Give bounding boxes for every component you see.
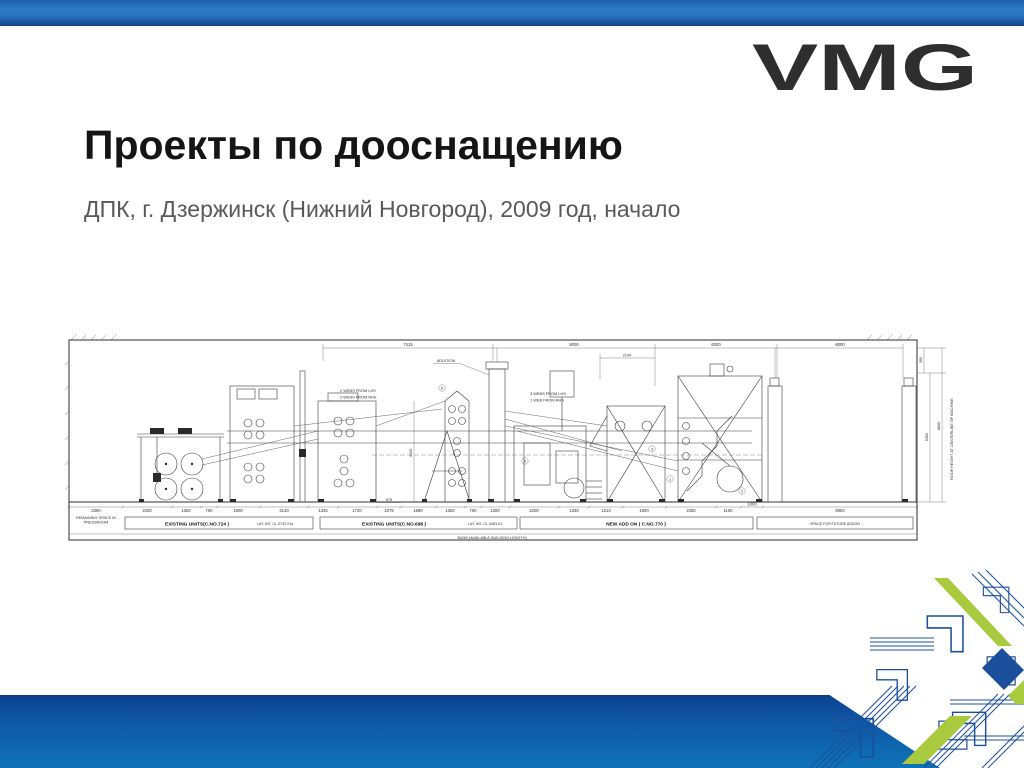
vmg-logo: VMG — [750, 32, 980, 104]
machine-layout-svg: 7415 8000 6000 6000 2194 ADDITION 2 WEBS… — [62, 331, 962, 547]
dim-label: 700 — [206, 508, 214, 513]
dim-label: 2200 — [142, 508, 152, 513]
pressroom-label: PRESSROOM — [84, 521, 109, 525]
dim-label: 1300 — [490, 508, 500, 513]
dim-label: 7415 — [403, 342, 413, 347]
section-sublabel: SPACE FOR FUTURE ADDON — [810, 522, 860, 526]
dim-label: 1345 — [569, 508, 579, 513]
dim-label: 300 — [919, 357, 923, 363]
slide-subtitle: ДПК, г. Дзержинск (Нижний Новгород), 200… — [84, 196, 964, 223]
section-sublabel: LAY. NO. CL-0742.01a — [257, 522, 293, 526]
ref-number: 2 — [741, 489, 743, 493]
dim-label: 8000 — [569, 342, 579, 347]
blue-solid-arrow — [982, 648, 1024, 690]
dim-label: 1000 — [747, 502, 757, 507]
section-sublabel: LAY. NO. CL-0483.01 — [468, 522, 502, 526]
dim-label: 5350 — [925, 433, 929, 441]
dim-label: 1075 — [384, 508, 394, 513]
addition-label: ADDITION — [437, 358, 456, 363]
dim-label: 1580 — [413, 508, 423, 513]
reference-bubbles: 6 5 3 1 2 — [439, 385, 745, 494]
webs-label: 3 WEBS FROM LHS — [530, 391, 566, 396]
dim-label: 6000 — [711, 342, 721, 347]
top-accent-bar — [0, 0, 1024, 26]
ref-number: 1 — [669, 477, 671, 481]
dim-label: 2194 — [623, 354, 631, 358]
dim-label: 1100 — [723, 508, 733, 513]
dim-label: 1300 — [181, 508, 191, 513]
webs-label: 1 WEB FROM RHS — [530, 398, 564, 403]
dim-label: 675 — [386, 498, 392, 502]
webs-label: 2 WEBS FROM RHS — [340, 395, 377, 400]
dim-label: 1900 — [233, 508, 243, 513]
dim-label: 2200 — [529, 508, 539, 513]
interior-dimensions: 4405 675 — [377, 401, 414, 503]
dim-label: 8800 — [937, 422, 941, 430]
ref-number: 5 — [524, 459, 526, 463]
dim-label: 2250 — [686, 508, 696, 513]
corner-decoration — [774, 568, 1024, 768]
roof-height-dimensions: 300 5350 8800 ROOF HEIGHT AT CENTERLINE … — [917, 348, 954, 502]
webs-label: 2 WEBS FROM LHS — [340, 388, 376, 393]
slide-title: Проекты по дооснащению — [84, 122, 964, 169]
vmg-logo-text: VMG — [752, 32, 978, 104]
pressroom-label: REMAINING SPACE IN — [76, 516, 116, 520]
ref-number: 3 — [651, 447, 653, 451]
addition-annotation: ADDITION — [433, 358, 489, 375]
technical-drawing: 7415 8000 6000 6000 2194 ADDITION 2 WEBS… — [62, 331, 962, 547]
dim-label: 700 — [470, 508, 478, 513]
section-label-boxes: EXISTING UNITS(C.NO.724 ) LAY. NO. CL-07… — [125, 517, 913, 529]
section-label: EXISTING UNITS(C.NO.724 ) — [165, 522, 229, 528]
ref-number: 6 — [441, 386, 443, 390]
total-length-label: 36260 (AVAILABLE BUILDING LENGTH) — [457, 536, 527, 540]
dim-label: 6900 — [835, 508, 845, 513]
dim-label: 2390 — [91, 508, 101, 513]
dim-label: 1300 — [445, 508, 455, 513]
dim-label: 1345 — [318, 508, 328, 513]
dim-label: 1900 — [639, 508, 649, 513]
machinery-linework — [137, 364, 908, 502]
section-label: NEW ADD ON ( C.NO.770 ) — [606, 522, 666, 528]
dim-label: 6000 — [835, 342, 845, 347]
slide-canvas: VMG Проекты по дооснащению ДПК, г. Дзерж… — [0, 0, 1024, 768]
section-label: EXISTING UNITS(C.NO.698 ) — [362, 522, 426, 528]
total-length-dimension: 36260 (AVAILABLE BUILDING LENGTH) — [69, 531, 917, 540]
dim-label: 1720 — [352, 508, 362, 513]
webs-annotations: 2 WEBS FROM LHS 2 WEBS FROM RHS 3 WEBS F… — [340, 388, 566, 403]
top-dimension-chain: 7415 8000 6000 6000 2194 — [323, 342, 903, 386]
dim-label: 1513 — [601, 508, 611, 513]
dim-label: 2140 — [279, 508, 289, 513]
roof-height-label: ROOF HEIGHT AT CENTERLINE OF MACHINE — [950, 398, 954, 480]
wall-hatching — [65, 335, 912, 490]
dim-label: 4405 — [409, 449, 413, 457]
